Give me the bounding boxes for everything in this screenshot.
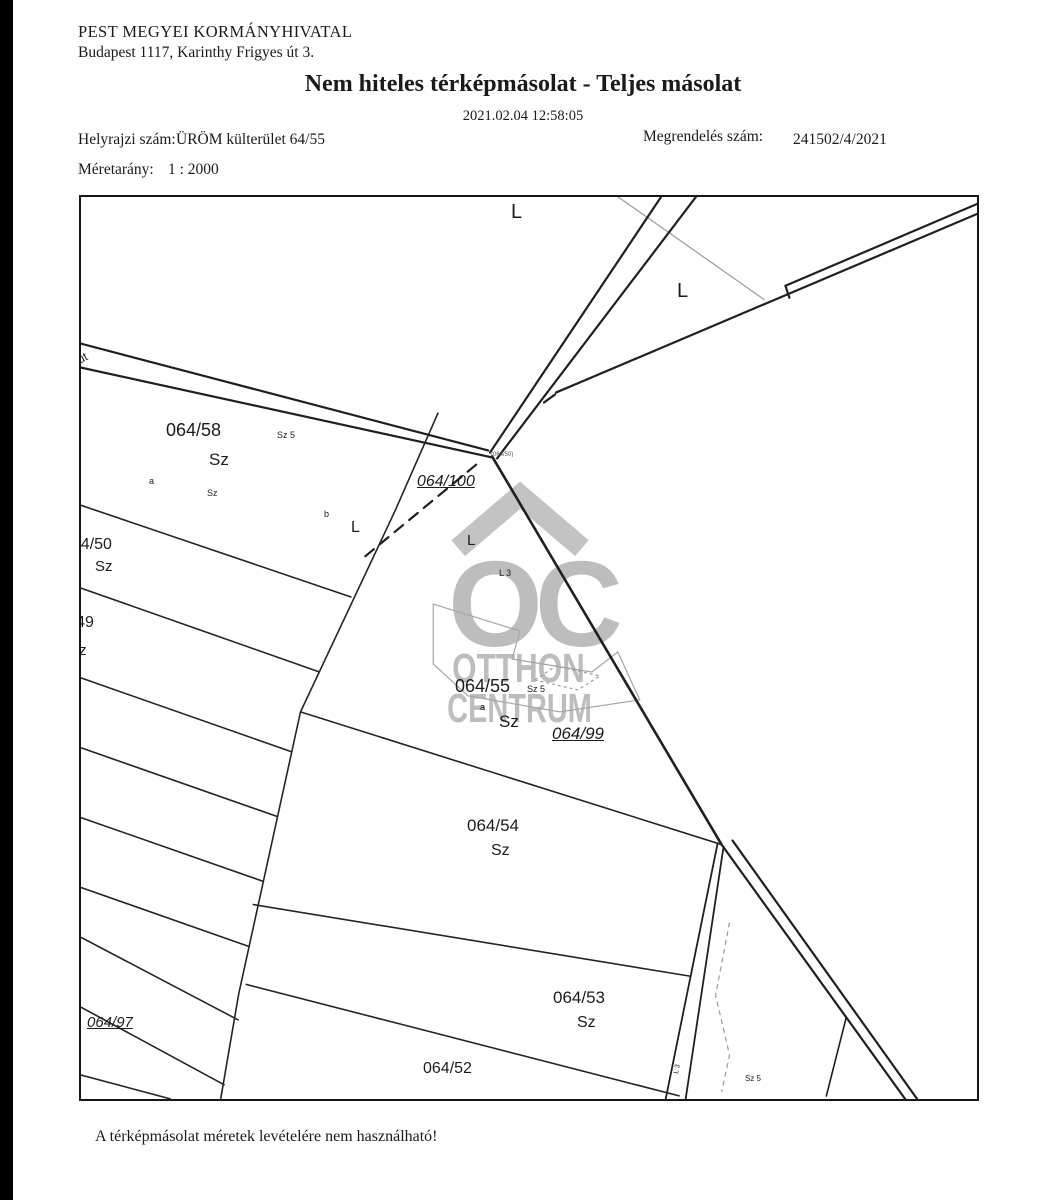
label-sz-053: Sz (577, 1015, 596, 1031)
label-sz5-058: Sz 5 (277, 431, 295, 440)
order-number-label: Megrendelés szám: (643, 128, 763, 146)
label-l-mid: L (351, 520, 360, 536)
label-parcel-064-52: 064/52 (423, 1061, 472, 1077)
label-parcel-064-97: 064/97 (87, 1015, 133, 1030)
label-l3-center: L 3 (499, 569, 511, 578)
label-sz-054: Sz (491, 843, 510, 859)
label-sz-small-058: Sz (207, 489, 218, 498)
label-junction-ref: (064/50) (491, 452, 513, 458)
scanned-document-page: PEST MEGYEI KORMÁNYHIVATAL Budapest 1117… (0, 0, 1046, 1200)
label-sz-050: Sz (95, 559, 113, 574)
label-parcel-064-99: 064/99 (552, 725, 604, 742)
map-scale-label: Méretarány: (78, 161, 154, 179)
scan-edge-artifact (0, 0, 13, 1200)
label-parcel-064-50: 064/50 (79, 537, 112, 553)
label-sz5-055: Sz 5 (527, 685, 545, 694)
label-a-055: a (480, 703, 485, 712)
label-parcel-064-49: 064/49 (79, 615, 94, 631)
label-l-right: L (677, 281, 688, 301)
label-parcel-064-53: 064/53 (553, 989, 605, 1006)
label-b: b (324, 510, 329, 519)
footer-disclaimer: A térképmásolat méretek levételére nem h… (95, 1128, 438, 1146)
label-parcel-064-55: 064/55 (455, 677, 510, 695)
parcel-number-value: ÜRÖM külterület 64/55 (176, 131, 325, 149)
office-address: Budapest 1117, Karinthy Frigyes út 3. (78, 44, 314, 62)
label-parcel-064-58: 064/58 (166, 421, 221, 439)
order-number-value: 241502/4/2021 (793, 131, 887, 149)
label-sz-058: Sz (209, 451, 229, 468)
label-l-center: L (467, 533, 475, 548)
label-a-058: a (149, 477, 154, 486)
label-sz-049: Sz (79, 643, 87, 658)
cadastral-map-frame: OC OTTHON CENTRUM (79, 195, 979, 1101)
parcel-lines (81, 413, 722, 1099)
document-timestamp: 2021.02.04 12:58:05 (0, 108, 1046, 125)
label-sz-055: Sz (499, 713, 519, 730)
parcel-number-label: Helyrajzi szám: (78, 131, 176, 149)
label-parcel-064-100: 064/100 (417, 474, 475, 490)
cadastral-map-drawing: OC OTTHON CENTRUM (81, 197, 977, 1099)
map-scale-value: 1 : 2000 (168, 161, 219, 179)
document-title: Nem hiteles térképmásolat - Teljes másol… (0, 71, 1046, 98)
label-sz5-bottom: Sz 5 (745, 1075, 761, 1083)
label-l-top: L (511, 202, 522, 222)
office-name: PEST MEGYEI KORMÁNYHIVATAL (78, 22, 352, 42)
label-parcel-064-54: 064/54 (467, 817, 519, 834)
